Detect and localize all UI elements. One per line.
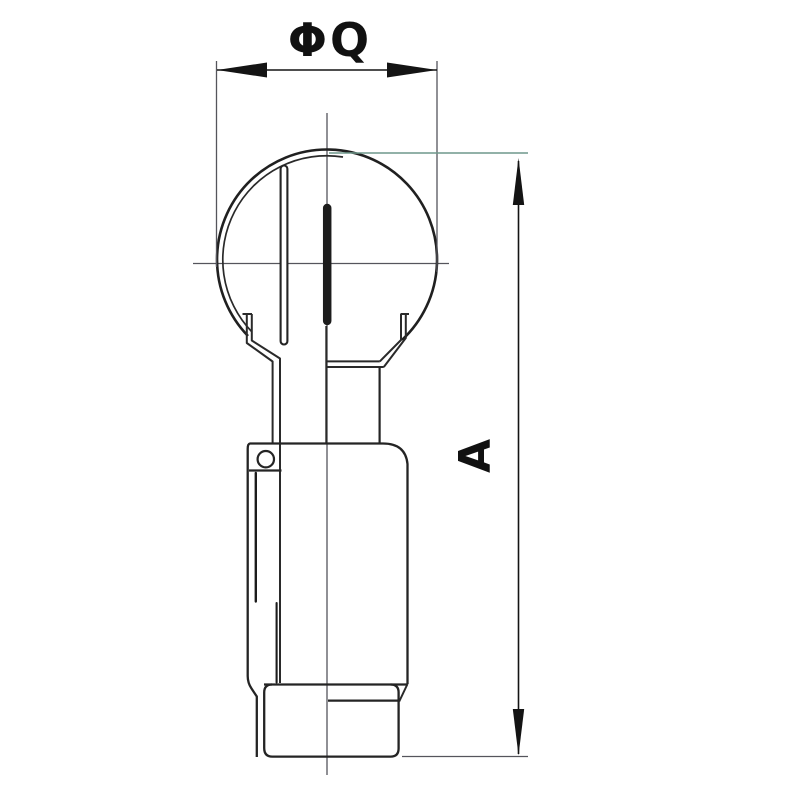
diameter-label: ΦQ: [288, 13, 372, 67]
drawing-page: ΦQ A: [0, 0, 787, 787]
dimension-height: A: [329, 153, 528, 757]
arrowhead-down: [513, 709, 524, 756]
height-label: A: [450, 439, 501, 473]
arrowhead-left: [217, 63, 267, 78]
spray-slot-left: [281, 166, 288, 345]
body-right-chamfer: [399, 684, 407, 702]
spray-ball-technical-drawing: ΦQ A: [0, 0, 787, 787]
connector-outline: [264, 685, 398, 757]
neck-tube: [326, 361, 384, 443]
right-finger-inner: [380, 314, 401, 361]
left-finger-outer: [247, 314, 273, 444]
arrowhead-right: [387, 63, 437, 78]
arrowhead-up: [513, 158, 524, 205]
clip-pin: [258, 451, 274, 467]
bottom-connector: [264, 685, 408, 757]
